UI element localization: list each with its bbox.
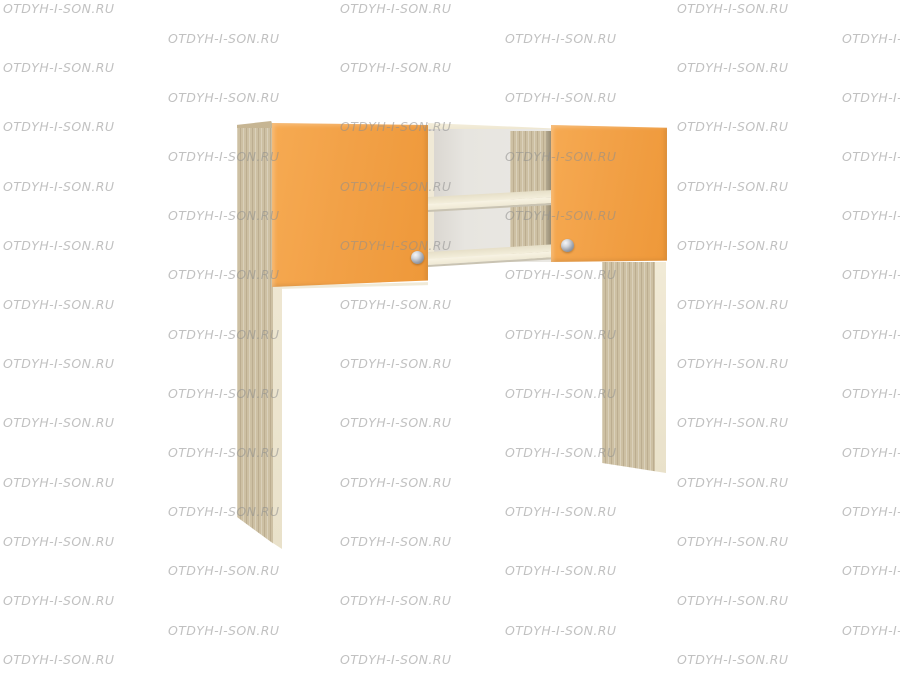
left-door-knob-icon: [411, 251, 424, 264]
right-leg-front-edge: [655, 262, 666, 474]
left-cabinet-door: [272, 123, 428, 287]
product-image: OTDYH-I-SON.RUOTDYH-I-SON.RUOTDYH-I-SON.…: [0, 0, 900, 675]
left-panel-wood-face: [237, 128, 273, 545]
left-partition-front-edge: [428, 131, 434, 259]
right-leg-wood-face: [602, 262, 655, 474]
right-leg-panel: [602, 262, 666, 474]
desk-hutch: [0, 0, 900, 675]
right-door-knob-icon: [561, 239, 574, 252]
